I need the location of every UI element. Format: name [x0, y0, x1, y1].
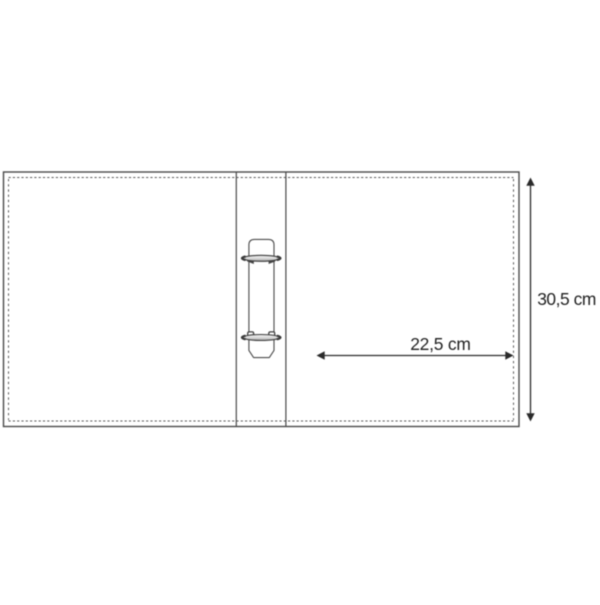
svg-text:22,5 cm: 22,5 cm — [410, 334, 470, 354]
svg-text:30,5 cm: 30,5 cm — [537, 289, 596, 309]
